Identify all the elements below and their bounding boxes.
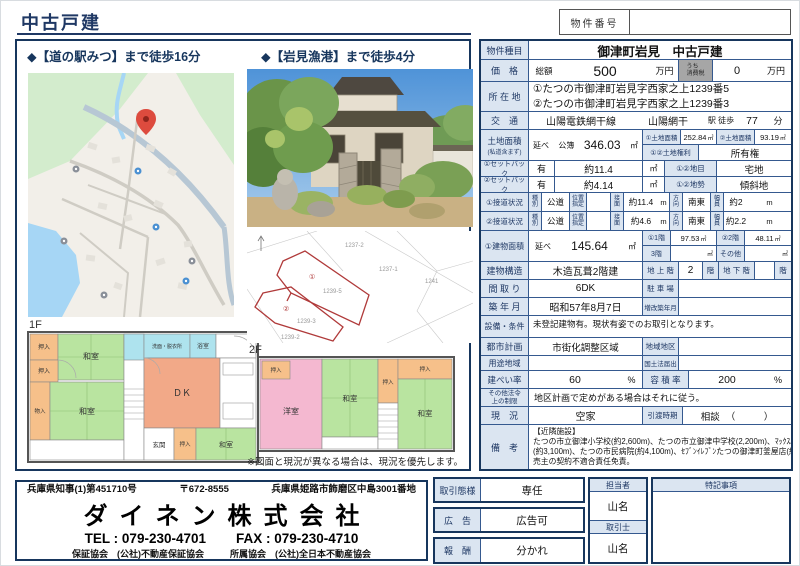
otherlaw-label: その他法令 上の制限 [481, 389, 529, 406]
tax-unit: 万円 [761, 60, 791, 81]
room-label-dk: ＤＫ [173, 388, 191, 398]
far-value: 200 [689, 371, 765, 388]
layout-value: 6DK [529, 280, 643, 297]
remarks-line4: 売主の契約不適合責任免責。 [533, 457, 787, 467]
type-value: 御津町岩見 中古戸建 [529, 41, 791, 59]
deal-mode-label: 取引態様 [435, 479, 481, 501]
remarks-line1: 【近隣施設】 [533, 427, 787, 437]
room-label-washitsu: 和室 [343, 393, 358, 403]
floors-above-label: 地 上 階 [643, 262, 679, 279]
road2-position-value [587, 212, 611, 230]
deal-fee-value: 分かれ [481, 539, 583, 562]
floor1-label: 1F [29, 319, 42, 331]
district-value [679, 338, 791, 355]
coverage-unit: % [621, 371, 643, 388]
far-label: 容 積 率 [643, 371, 689, 388]
usage-value [529, 356, 643, 370]
table-row-status: 現 況 空家 引渡時期 相談（ ） [481, 407, 791, 425]
built-value: 昭和57年8月7日 [529, 298, 643, 315]
status-value: 空家 [529, 407, 643, 424]
building-label: ①建物面積 [481, 231, 529, 261]
land-total-unit: ㎡ [630, 140, 638, 151]
company-guarantee: 保証協会 (公社)不動産保証協会 [72, 547, 204, 560]
road2-width-value: 約2.2 [724, 212, 748, 230]
road1-direction: 南東 [683, 193, 711, 211]
table-row-cityplan: 都市計画 市街化調整区域 地域地区 [481, 338, 791, 356]
coverage-value: 60 [529, 371, 621, 388]
table-row-coverage: 建ぺい率 60 % 容 積 率 200 % [481, 371, 791, 389]
road2-label: ②接道状況 [481, 212, 529, 230]
neighbor-lot: 1241 [425, 279, 439, 285]
deal-fee-label: 報 酬 [435, 539, 481, 562]
walk-label: 駅 徒歩 [703, 112, 739, 129]
agent-name: 山名 [590, 534, 646, 562]
agent-header: 取引士 [590, 521, 646, 534]
plan-disclaimer: ※図面と現況が異なる場合は、現況を優先します。 [247, 454, 463, 468]
parcel1-number: ① [309, 273, 315, 281]
setback2-flag: 有 [529, 177, 555, 192]
floors-above-value: 2 [679, 262, 703, 279]
room-label-bath: 浴室 [197, 342, 209, 350]
price-label: 価 格 [481, 60, 529, 81]
structure-value: 木造瓦葺2階建 [529, 262, 643, 279]
road1-width-value: 約2 [724, 193, 748, 211]
notes-value [653, 492, 789, 562]
cityplan-label: 都市計画 [481, 338, 529, 355]
road-direction-label: 方 向 [670, 193, 683, 211]
floors-above-unit: 階 [703, 262, 719, 279]
page-title: 中古戸建 [21, 9, 101, 35]
parcel2-lot: 1239-3 [297, 319, 316, 325]
floorplan-1f: 押入 和室 押入 物入 和室 洗面・脱衣所 浴室 ＤＫ 玄関 押入 和室 [27, 331, 259, 463]
room-label-washitsu: 和室 [83, 351, 99, 361]
floorplan-1f-image: 押入 和室 押入 物入 和室 洗面・脱衣所 浴室 ＤＫ 玄関 押入 和室 [27, 331, 259, 463]
price-value: 500 [559, 60, 651, 81]
road2-width-unit: m [748, 212, 791, 230]
status-label: 現 況 [481, 407, 529, 424]
setback1-value: 約11.4 [555, 161, 643, 176]
walk-unit: 分 [765, 112, 791, 129]
property-detail-table: 物件種目 御津町岩見 中古戸建 価 格 総額 500 万円 うち 消費税 0 万… [479, 39, 793, 471]
setback2-value: 約4.14 [555, 177, 643, 192]
table-row-otherlaw: その他法令 上の制限 地区計画で定めがある場合はそれに従う。 [481, 389, 791, 407]
deal-mode-value: 専任 [481, 479, 583, 501]
company-tel: TEL : 079-230-4701 [85, 531, 206, 546]
usage-label: 用途地域 [481, 356, 529, 370]
road-front-label: 接 面 [611, 212, 624, 230]
address-label: 所 在 地 [481, 82, 529, 111]
table-row-transport: 交 通 山陽電鉄網干線 山陽網干 駅 徒歩 77 分 [481, 112, 791, 130]
remarks-line3: (約3,100m)、たつの市民病院(約4,100m)、ｾﾌﾞﾝｲﾚﾌﾞﾝたつの御… [533, 447, 787, 457]
neighbor-lot: 1237-1 [379, 267, 398, 273]
setback1-unit: ㎡ [643, 161, 665, 176]
table-row-price: 価 格 総額 500 万円 うち 消費税 0 万円 [481, 60, 791, 82]
location-map [28, 73, 234, 317]
road1-width-unit: m [748, 193, 791, 211]
floor3-area-label: 3階 [643, 246, 671, 261]
company-license: 兵庫県知事(1)第451710号 [27, 481, 137, 495]
road1-position-value [587, 193, 611, 211]
chisei-label: ①②地勢 [665, 177, 717, 192]
setback1-flag: 有 [529, 161, 555, 176]
land-rights-label: ①②土地権利 [643, 145, 699, 160]
equipment-label: 設備・条件 [481, 316, 529, 337]
road-type-label: 種 別 [529, 212, 542, 230]
property-number-box: 物件番号 [559, 9, 791, 35]
address-line1: ①たつの市御津町岩見字西家之上1239番5 [529, 82, 791, 97]
company-association: 所属協会 (公社)全日本不動産協会 [230, 547, 371, 560]
room-label-oshiire: 押入 [38, 367, 50, 375]
table-row-setback1: ①セットバック 有 約11.4 ㎡ ①②地目 宅地 [481, 161, 791, 177]
table-row-usage: 用途地域 国土法届出 [481, 356, 791, 371]
table-row-road1: ①接道状況 種 別 公道 位置 指定 接 面 約11.4 m 方 向 南東 幅 … [481, 193, 791, 212]
staff-header: 担当者 [590, 479, 646, 492]
other-area-label: その他 [717, 246, 745, 261]
exterior-photo [247, 69, 473, 227]
floor1-area-label: ①1階 [643, 231, 671, 245]
media-panel: ◆【道の駅みつ】まで徒歩16分 ◆【岩見漁港】まで徒歩4分 [15, 39, 471, 471]
table-row-type: 物件種目 御津町岩見 中古戸建 [481, 41, 791, 60]
otherlaw-value: 地区計画で定めがある場合はそれに従う。 [529, 389, 791, 406]
road-width-label: 幅 員 [711, 212, 724, 230]
road1-front-value: 約11.4 [624, 193, 658, 211]
notes-header: 特記事項 [653, 479, 789, 492]
table-row-equipment: 設備・条件 未登記建物有。現状有姿でのお取引となります。 [481, 316, 791, 338]
address-line2: ②たつの市御津町岩見字西家之上1239番3 [529, 97, 791, 112]
road2-front-value: 約4.6 [624, 212, 658, 230]
setback2-unit: ㎡ [643, 177, 665, 192]
price-total-label: 総額 [529, 60, 559, 81]
parcel2-number: ② [283, 305, 289, 313]
landlaw-value [679, 356, 791, 370]
title-underline [17, 33, 471, 35]
price-unit: 万円 [651, 60, 679, 81]
table-row-setback2: ②セットバック 有 約4.14 ㎡ ①②地勢 傾斜地 [481, 177, 791, 193]
renovation-label: 増改築年月 [643, 298, 679, 315]
room-label-washitsu: 和室 [219, 440, 233, 449]
rail-line: 山陽電鉄網干線 [529, 112, 633, 129]
company-postal: 〒672-8555 [179, 481, 229, 495]
table-row-remarks: 備 考 【近隣施設】 たつの市立御津小学校(約2,600m)、たつの市立御津中学… [481, 425, 791, 469]
land-label: 土地面積 [481, 135, 528, 147]
company-fax: FAX : 079-230-4710 [236, 531, 358, 546]
road-position-label: 位置 指定 [570, 193, 587, 211]
deal-ad-label: 広 告 [435, 509, 481, 531]
road2-type: 公道 [542, 212, 570, 230]
neighbor-lot: 1237-2 [345, 243, 364, 249]
room-label-washitsu: 和室 [418, 408, 433, 418]
tax-label: うち 消費税 [679, 60, 713, 81]
floorplan-2f-image: 押入 洋室 和室 押入 押入 和室 [257, 356, 455, 452]
land2-label: ②土地面積 [717, 130, 755, 144]
table-row-land: 土地面積 (私道含まず) 延べ 公簿 346.03 ㎡ ①土地面積 252.84… [481, 130, 791, 161]
room-label-washroom: 洗面・脱衣所 [152, 343, 182, 350]
table-row-structure: 建物構造 木造瓦葺2階建 地 上 階 2 階 地 下 階 階 [481, 262, 791, 280]
room-label-washitsu: 和室 [79, 406, 95, 416]
road-position-label: 位置 指定 [570, 212, 587, 230]
type-label: 物件種目 [481, 41, 529, 59]
station-name: 山陽網干 [633, 112, 703, 129]
remarks-label: 備 考 [481, 425, 529, 469]
built-label: 築 年 月 [481, 298, 529, 315]
room-label-oshiire: 押入 [38, 343, 50, 351]
deal-fee-box: 報 酬 分かれ [433, 537, 585, 564]
building-total-unit: ㎡ [628, 241, 636, 252]
room-label-oshiire: 押入 [179, 440, 191, 448]
handover-label: 引渡時期 [643, 407, 683, 424]
map-caption: ◆【道の駅みつ】まで徒歩16分 [27, 46, 201, 65]
neighbor-lot: 1239-2 [281, 335, 300, 341]
company-box: 兵庫県知事(1)第451710号 〒672-8555 兵庫県姫路市飾磨区中島30… [15, 480, 428, 561]
building-nobe-label: 延べ [535, 241, 551, 252]
property-number-value [630, 10, 790, 34]
deal-mode-box: 取引態様 専任 [433, 477, 585, 503]
map-image [28, 73, 234, 317]
renovation-value [679, 298, 791, 315]
table-row-building: ①建物面積 延べ 145.64 ㎡ ①1階 97.53㎡ ②2階 48.11㎡ [481, 231, 791, 262]
cityplan-value: 市街化調整区域 [529, 338, 643, 355]
road1-front-unit: m [658, 193, 670, 211]
floors-below-value [755, 262, 775, 279]
other-area-unit: ㎡ [745, 246, 791, 261]
tax-value: 0 [713, 60, 761, 81]
road-front-label: 接 面 [611, 193, 624, 211]
handover-value: 相談（ ） [683, 407, 791, 424]
road1-label: ①接道状況 [481, 193, 529, 211]
district-label: 地域地区 [643, 338, 679, 355]
floorplan-2f: 押入 洋室 和室 押入 押入 和室 [257, 356, 455, 452]
chimoku-label: ①②地目 [665, 161, 717, 176]
deal-ad-box: 広 告 広告可 [433, 507, 585, 533]
property-number-label: 物件番号 [560, 10, 630, 34]
road2-front-unit: m [658, 212, 670, 230]
company-name: ダイネン株式会社 [27, 496, 416, 531]
land-total-value: 346.03 [584, 138, 621, 152]
parking-value [679, 280, 791, 297]
flyer-page: 中古戸建 物件番号 ◆【道の駅みつ】まで徒歩16分 ◆【岩見漁港】まで徒歩4分 [0, 0, 800, 566]
walk-minutes: 77 [739, 112, 765, 129]
deal-notes-box: 特記事項 [651, 477, 791, 564]
deal-section: 取引態様 専任 広 告 広告可 報 酬 分かれ 担当者 山名 取引士 山名 特記… [433, 477, 791, 564]
floors-below-label: 地 下 階 [719, 262, 755, 279]
parcel1-lot: 1239-5 [323, 289, 342, 295]
land2-value: 93.19㎡ [755, 130, 791, 144]
photo-caption: ◆【岩見漁港】まで徒歩4分 [261, 46, 415, 65]
landlaw-label: 国土法届出 [643, 356, 679, 370]
parking-label: 駐 車 場 [643, 280, 679, 297]
table-row-built: 築 年 月 昭和57年8月7日 増改築年月 [481, 298, 791, 316]
coverage-label: 建ぺい率 [481, 371, 529, 388]
deal-staff-box: 担当者 山名 取引士 山名 [588, 477, 648, 564]
equipment-value: 未登記建物有。現状有姿でのお取引となります。 [529, 316, 791, 337]
road-type-label: 種 別 [529, 193, 542, 211]
land-sublabel: (私道含まず) [481, 147, 528, 156]
table-row-layout: 間 取 り 6DK 駐 車 場 [481, 280, 791, 298]
transport-label: 交 通 [481, 112, 529, 129]
floors-below-unit: 階 [775, 262, 791, 279]
setback2-label: ②セットバック [481, 177, 529, 192]
exterior-photo-image [247, 69, 473, 227]
table-row-road2: ②接道状況 種 別 公道 位置 指定 接 面 約4.6 m 方 向 南東 幅 員… [481, 212, 791, 231]
room-label-genkan: 玄関 [153, 440, 166, 449]
building-total-value: 145.64 [571, 239, 608, 253]
room-label-youshitsu: 洋室 [283, 406, 299, 416]
road-direction-label: 方 向 [670, 212, 683, 230]
chisei-value: 傾斜地 [717, 177, 791, 192]
table-row-address: 所 在 地 ①たつの市御津町岩見字西家之上1239番5 ②たつの市御津町岩見字西… [481, 82, 791, 112]
remarks-line2: たつの市立御津小学校(約2,600m)、たつの市立御津中学校(2,200m)、ﾏ… [533, 437, 787, 447]
land-nobe-label: 延べ [533, 140, 549, 151]
land1-value: 252.84㎡ [681, 130, 717, 144]
far-unit: % [765, 371, 791, 388]
cadastral-map: ① 1239-5 ② 1239-3 1237-2 1237-1 1241 123… [247, 231, 473, 343]
company-address: 兵庫県姫路市飾磨区中島3001番地 [271, 481, 416, 495]
floor2-area-label: ②2階 [717, 231, 745, 245]
room-label-oshiire: 押入 [382, 378, 394, 386]
road-width-label: 幅 員 [711, 193, 724, 211]
layout-label: 間 取 り [481, 280, 529, 297]
land-koubo-label: 公簿 [558, 140, 574, 151]
deal-ad-value: 広告可 [481, 509, 583, 531]
chimoku-value: 宅地 [717, 161, 791, 176]
road2-direction: 南東 [683, 212, 711, 230]
road1-type: 公道 [542, 193, 570, 211]
room-label-oshiire: 押入 [419, 365, 431, 373]
floor2-label: 2F [249, 344, 262, 356]
land-rights-value: 所有権 [699, 145, 791, 160]
cadastral-map-image: ① 1239-5 ② 1239-3 1237-2 1237-1 1241 123… [247, 231, 473, 343]
room-label-monoire: 物入 [34, 407, 46, 415]
structure-label: 建物構造 [481, 262, 529, 279]
floor1-area-value: 97.53㎡ [671, 231, 717, 245]
room-label-oshiire: 押入 [270, 366, 282, 374]
land1-label: ①土地面積 [643, 130, 681, 144]
setback1-label: ①セットバック [481, 161, 529, 176]
staff-name: 山名 [590, 492, 646, 521]
floor3-area-unit: ㎡ [671, 246, 717, 261]
floor2-area-value: 48.11㎡ [745, 231, 791, 245]
